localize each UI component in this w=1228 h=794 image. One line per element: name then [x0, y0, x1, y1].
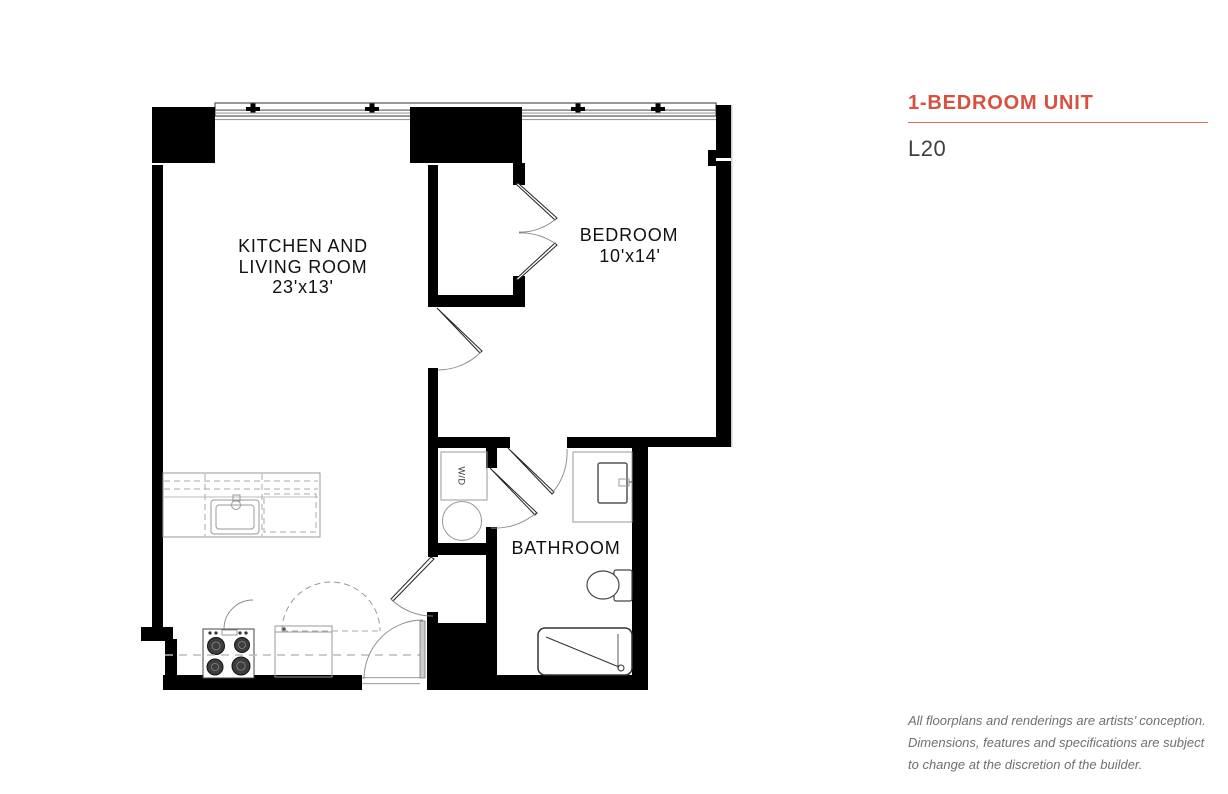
entry-door	[364, 620, 425, 679]
kitchen-living-dimensions: 23'x13'	[272, 277, 334, 297]
bedroom-door	[437, 308, 482, 370]
laundry-door	[490, 468, 537, 528]
kitchen-sink	[211, 495, 259, 534]
bathroom-label: BATHROOM	[511, 538, 620, 558]
toilet	[587, 570, 632, 601]
page: W/D	[0, 0, 1228, 794]
bedroom-dimensions: 10'x14'	[599, 246, 661, 266]
stove	[203, 629, 254, 678]
washer-dryer-label: W/D	[457, 467, 467, 486]
bedroom-label: BEDROOM	[580, 225, 679, 245]
bathroom-door	[508, 448, 567, 494]
refrigerator	[275, 626, 332, 677]
closet-bifold-doors	[516, 183, 557, 280]
kitchen-living-label-line1: KITCHEN AND	[238, 236, 368, 256]
kitchen-living-label-line2: LIVING ROOM	[239, 257, 368, 277]
title-underline	[908, 122, 1208, 123]
kitchen-counter	[163, 473, 320, 537]
info-panel: 1-BEDROOM UNIT L20	[908, 93, 1208, 162]
unit-type-title: 1-BEDROOM UNIT	[908, 93, 1208, 114]
water-heater	[443, 502, 482, 541]
washer-dryer: W/D	[441, 452, 487, 500]
disclaimer-text: All floorplans and renderings are artist…	[908, 710, 1210, 776]
unit-number: L20	[908, 136, 1208, 162]
entry-closet-door	[391, 557, 434, 616]
bathtub	[538, 628, 632, 675]
walls	[141, 105, 733, 690]
bathroom-vanity	[573, 452, 633, 522]
